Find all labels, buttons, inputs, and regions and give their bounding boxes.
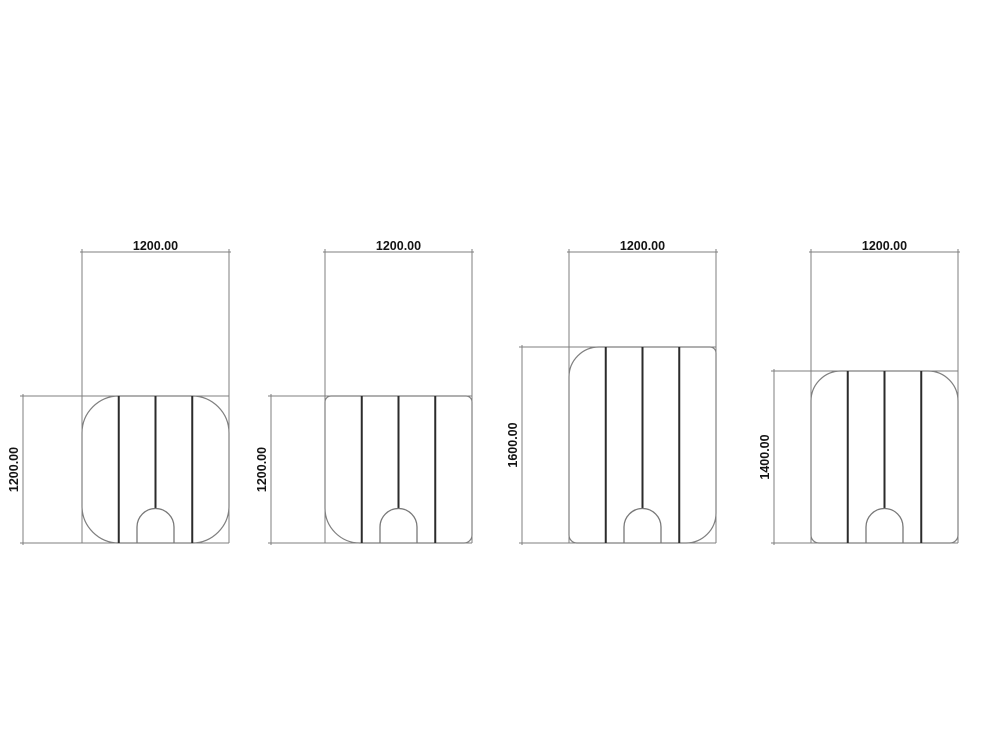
height-dimension-label: 1200.00	[7, 447, 21, 492]
vent-arch	[137, 509, 174, 544]
vent-arch	[380, 509, 417, 544]
cad-drawing-area: 1200.001200.001200.001200.001200.001600.…	[0, 0, 1000, 755]
cover-pattern-1: 1200.001200.00	[7, 239, 231, 545]
height-dimension-label: 1600.00	[506, 422, 520, 467]
cover-pattern-4: 1200.001400.00	[758, 239, 960, 545]
cover-pattern-3: 1200.001600.00	[506, 239, 718, 545]
cover-pattern-2: 1200.001200.00	[255, 239, 474, 545]
height-dimension-label: 1200.00	[255, 447, 269, 492]
width-dimension-label: 1200.00	[862, 239, 907, 253]
vent-arch	[866, 509, 903, 544]
vent-arch	[624, 509, 661, 544]
width-dimension-label: 1200.00	[133, 239, 178, 253]
width-dimension-label: 1200.00	[376, 239, 421, 253]
width-dimension-label: 1200.00	[620, 239, 665, 253]
height-dimension-label: 1400.00	[758, 434, 772, 479]
drawing-canvas: 1200.001200.001200.001200.001200.001600.…	[0, 0, 1000, 755]
